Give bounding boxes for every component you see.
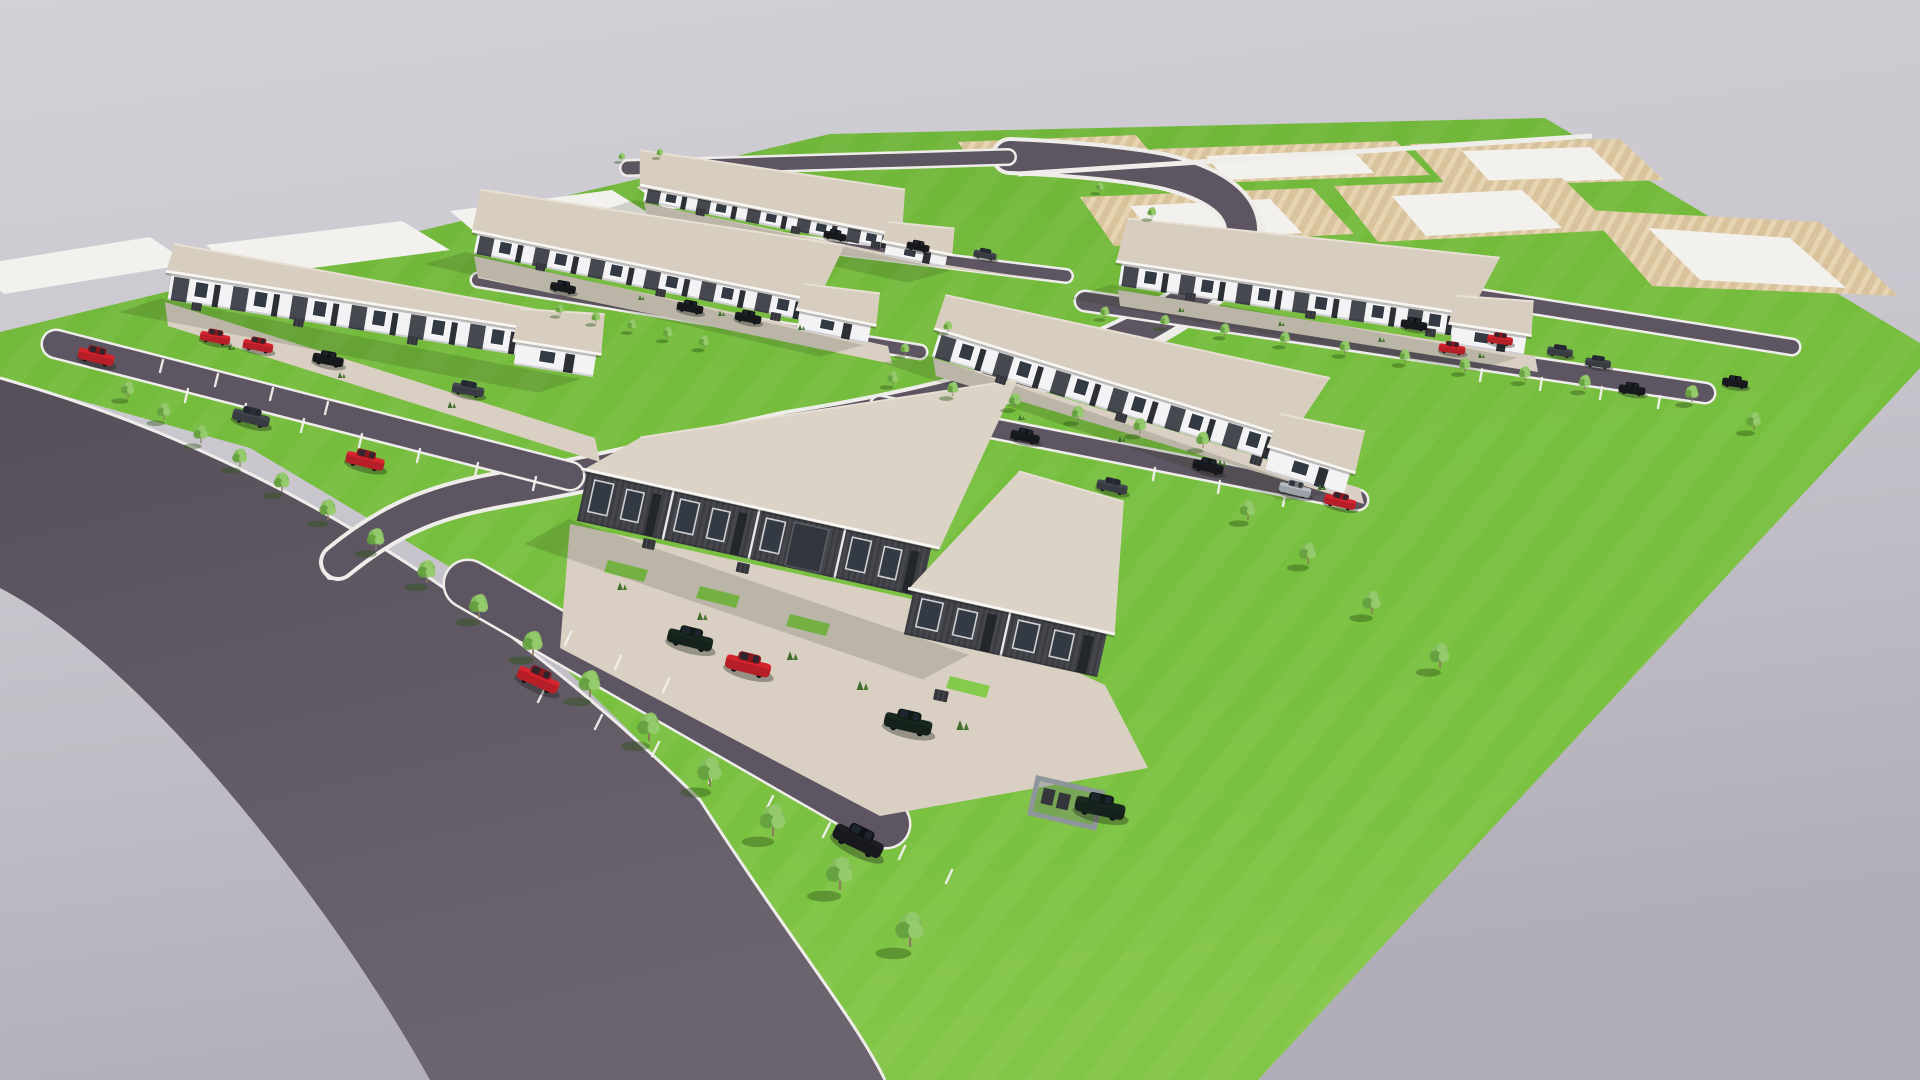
waste-bins — [1305, 310, 1316, 319]
waste-bins — [191, 302, 202, 311]
waste-bins — [407, 336, 419, 346]
waste-bins — [1185, 292, 1196, 301]
waste-bins — [293, 318, 304, 328]
architectural-render-viewport: Aerial 3D rendering of a suburban housin… — [0, 0, 1920, 1080]
site-plan-3d-render: Residential development - aerial 3D site… — [0, 0, 1920, 1080]
